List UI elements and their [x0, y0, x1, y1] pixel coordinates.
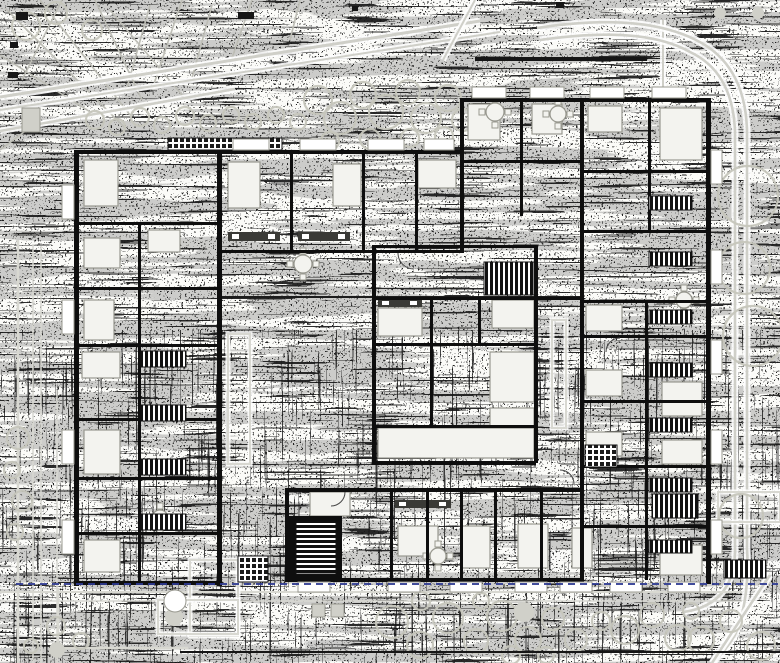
- stair-hatch: [141, 351, 186, 367]
- furniture-item: [228, 162, 260, 208]
- stair-hatch: [141, 514, 186, 530]
- stair-hatch: [649, 418, 692, 432]
- chair: [313, 261, 319, 267]
- chair: [505, 109, 511, 115]
- gray-dot: [49, 642, 65, 658]
- wall-segment: [222, 150, 462, 154]
- furniture-item: [310, 492, 350, 516]
- chair: [567, 111, 573, 117]
- wall-segment: [580, 98, 584, 582]
- stair-hatch: [652, 494, 698, 518]
- gray-square: [22, 108, 40, 132]
- black-mark: [352, 6, 358, 11]
- furniture-item: [84, 238, 120, 268]
- table: [430, 548, 446, 564]
- wall-segment: [460, 160, 582, 163]
- wall-segment: [540, 490, 543, 580]
- balcony: [530, 87, 564, 98]
- chair: [157, 503, 163, 509]
- chair: [300, 274, 306, 280]
- kitchen-sink: [399, 502, 406, 506]
- wall-segment: [222, 250, 462, 253]
- wall-segment: [390, 490, 393, 580]
- balcony: [711, 430, 722, 464]
- furniture-item: [518, 524, 548, 568]
- furniture-item: [333, 164, 361, 206]
- furniture-item: [662, 440, 702, 464]
- black-mark: [475, 57, 647, 61]
- wall-segment: [460, 490, 463, 580]
- wall-segment: [584, 170, 706, 173]
- wall-segment: [583, 400, 706, 403]
- wall-segment: [415, 150, 418, 250]
- kitchen-sink: [382, 301, 389, 305]
- wall-segment: [285, 488, 583, 492]
- wall-segment: [74, 477, 222, 480]
- balcony: [62, 185, 74, 219]
- wall-segment: [534, 245, 538, 463]
- gray-dot: [714, 7, 726, 19]
- ramp-hatch: [238, 556, 268, 582]
- gray-square: [312, 604, 325, 617]
- balcony: [711, 250, 722, 284]
- white-circle: [164, 590, 186, 612]
- chair: [479, 109, 485, 115]
- furniture-item: [418, 160, 456, 188]
- stair-hatch: [649, 478, 692, 492]
- wall-segment: [460, 98, 710, 102]
- black-mark: [238, 12, 254, 19]
- balcony: [424, 139, 454, 150]
- kitchen-sink: [302, 234, 309, 239]
- furniture-item: [586, 370, 622, 396]
- furniture-item: [84, 160, 118, 206]
- furniture-item: [84, 300, 114, 340]
- balcony: [590, 87, 624, 98]
- furniture-item: [490, 352, 534, 402]
- furniture-item: [82, 352, 120, 378]
- black-mark: [10, 42, 18, 48]
- furniture-item: [84, 540, 120, 572]
- wall-segment: [372, 461, 536, 465]
- furniture-item: [84, 430, 120, 474]
- gray-dot: [514, 602, 534, 622]
- stair-hatch: [724, 560, 766, 578]
- balcony: [298, 582, 330, 592]
- wall-segment: [217, 150, 222, 586]
- stair-hatch: [141, 459, 186, 475]
- wall-segment: [583, 335, 706, 338]
- wall-segment: [430, 297, 433, 425]
- wall-segment: [460, 98, 464, 253]
- stair-hatch: [296, 522, 336, 574]
- floor-plan-canvas: [0, 0, 780, 663]
- chair: [447, 553, 453, 559]
- stair-hatch: [484, 262, 534, 295]
- furniture-item: [660, 108, 702, 160]
- balcony: [560, 582, 592, 592]
- chair: [555, 123, 561, 129]
- wall-segment: [74, 287, 222, 290]
- furniture-item: [662, 382, 702, 416]
- wall-segment: [74, 150, 79, 586]
- balcony: [300, 139, 336, 150]
- stair-hatch: [141, 405, 186, 421]
- wall-segment: [372, 245, 536, 248]
- balcony: [233, 139, 269, 150]
- black-mark: [16, 12, 28, 20]
- chair: [492, 122, 498, 128]
- wall-segment: [362, 150, 365, 250]
- black-mark: [556, 2, 564, 8]
- balcony: [472, 87, 506, 98]
- stair-hatch: [649, 310, 692, 324]
- floor-plan-svg: [0, 0, 780, 663]
- wall-segment: [426, 490, 429, 580]
- kitchen-hob: [338, 234, 345, 239]
- table: [550, 106, 566, 122]
- wall-segment: [583, 300, 706, 303]
- black-mark: [180, 651, 780, 653]
- table: [294, 255, 312, 273]
- balcony: [652, 87, 686, 98]
- wall-segment: [290, 150, 293, 250]
- stair-hatch: [649, 540, 692, 553]
- wall-segment: [74, 532, 222, 535]
- chair: [681, 285, 687, 291]
- furniture-item: [492, 300, 534, 328]
- wall-segment: [74, 344, 222, 347]
- wall-segment: [74, 222, 222, 225]
- wall-segment: [645, 300, 648, 580]
- black-mark: [8, 72, 18, 78]
- ramp-hatch: [585, 445, 617, 467]
- balcony: [711, 520, 722, 554]
- stair-hatch: [649, 196, 692, 210]
- balcony: [668, 582, 700, 592]
- balcony: [711, 150, 722, 184]
- wall-segment: [584, 230, 706, 233]
- wall-segment: [372, 425, 536, 428]
- stair-hatch: [649, 252, 692, 266]
- balcony: [368, 139, 404, 150]
- balcony: [610, 582, 642, 592]
- wall-segment: [478, 297, 481, 343]
- wall-segment: [372, 297, 536, 300]
- balcony: [515, 582, 547, 592]
- wall-segment: [372, 245, 376, 463]
- wall-segment: [494, 490, 497, 580]
- balcony: [711, 340, 722, 374]
- chair: [435, 541, 441, 547]
- wall-segment: [706, 98, 711, 584]
- furniture-item: [378, 428, 534, 458]
- table: [486, 103, 504, 121]
- furniture-item: [378, 308, 422, 336]
- kitchen-hob: [268, 234, 275, 239]
- stair-hatch: [649, 363, 692, 377]
- chair: [287, 261, 293, 267]
- wall-segment: [372, 343, 536, 346]
- wall-segment: [74, 150, 222, 154]
- chair: [435, 565, 441, 571]
- furniture-item: [588, 106, 622, 132]
- furniture-item: [586, 305, 622, 331]
- gray-square: [331, 604, 344, 617]
- kitchen-hob: [410, 301, 417, 305]
- kitchen-hob: [439, 502, 446, 506]
- furniture-item: [148, 230, 180, 252]
- chair: [543, 111, 549, 117]
- kitchen-sink: [232, 234, 239, 239]
- balcony: [62, 300, 74, 334]
- balcony: [62, 430, 74, 464]
- balcony: [62, 520, 74, 554]
- gray-dot: [752, 7, 764, 19]
- wall-segment: [520, 98, 523, 216]
- wall-segment: [583, 525, 706, 528]
- furniture-item: [462, 526, 490, 568]
